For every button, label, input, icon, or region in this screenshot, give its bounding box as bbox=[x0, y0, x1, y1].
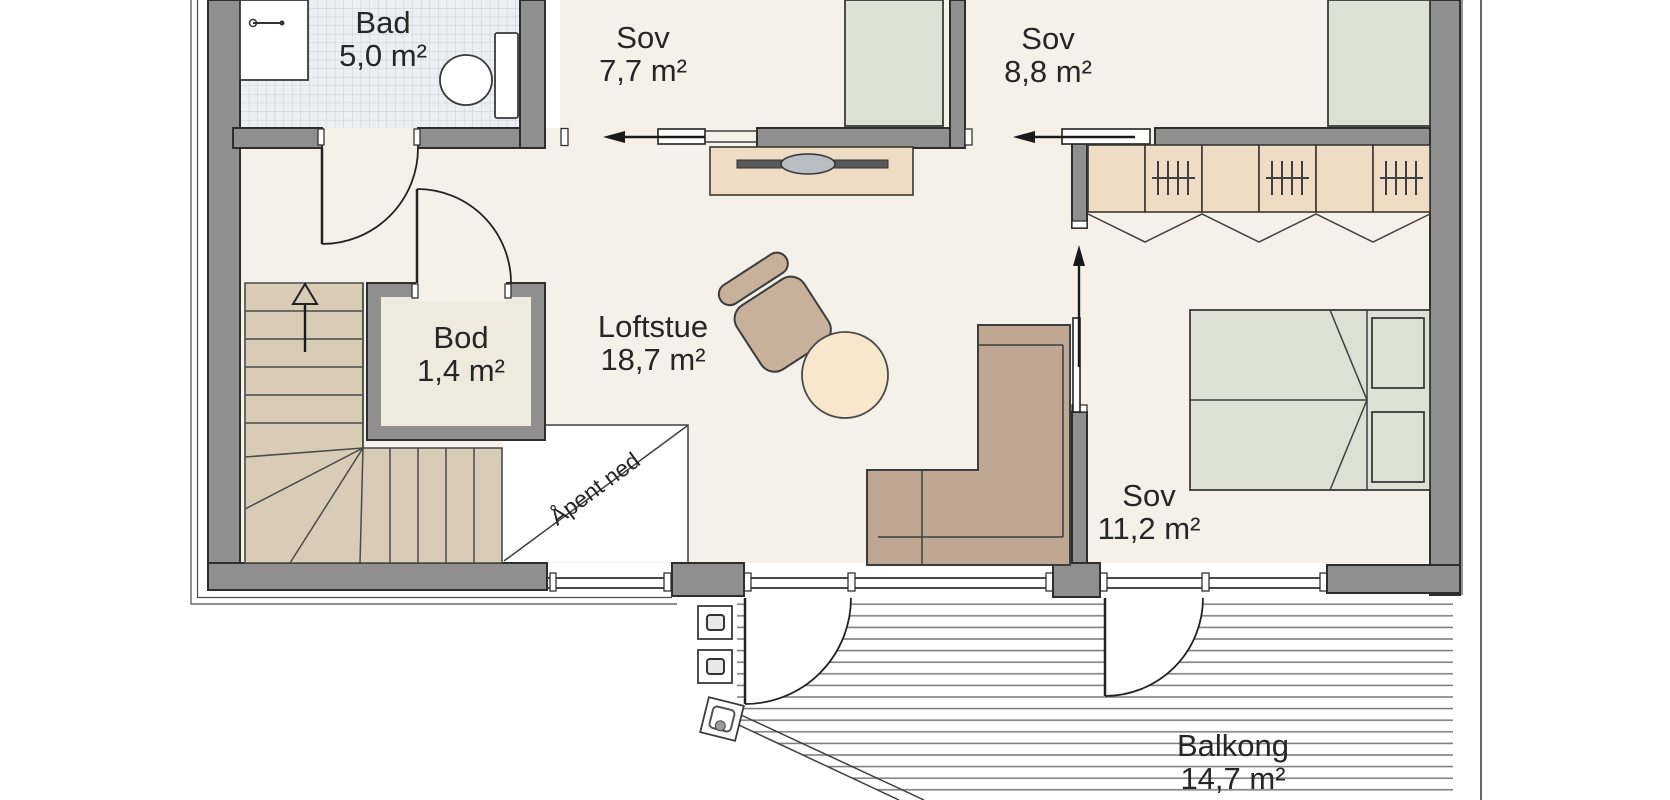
wall-left bbox=[208, 0, 240, 590]
room-label-sov2: Sov8,8 m² bbox=[1004, 23, 1092, 89]
balcony-posts bbox=[698, 606, 744, 741]
bed-sov1 bbox=[845, 0, 943, 126]
bed-sov2 bbox=[1328, 0, 1430, 126]
dresser-tv bbox=[710, 147, 913, 195]
wall-bath-bottom-a bbox=[233, 128, 322, 148]
wall-sov1-bottom bbox=[757, 128, 950, 148]
room-label-bad: Bad5,0 m² bbox=[339, 7, 427, 73]
wall-bath-bottom-b bbox=[418, 128, 520, 148]
room-label-sov1: Sov7,7 m² bbox=[599, 22, 687, 88]
floor-plan-drawing bbox=[0, 0, 1670, 800]
wall-bottom-right bbox=[1327, 565, 1460, 593]
coffee-table bbox=[802, 332, 888, 418]
double-bed-sov3 bbox=[1190, 310, 1430, 490]
wall-loft-divider-bottom bbox=[1072, 412, 1087, 563]
wall-pier-mid bbox=[1053, 563, 1100, 597]
pillow bbox=[1372, 318, 1424, 388]
wall-right bbox=[1430, 0, 1460, 595]
wall-bottom-left bbox=[208, 563, 547, 590]
vanity bbox=[240, 0, 308, 80]
wall-pier-left bbox=[672, 563, 744, 596]
room-label-sov3: Sov11,2 m² bbox=[1098, 480, 1201, 546]
floor-plan: Bad5,0 m² Sov7,7 m² Sov8,8 m² Bod1,4 m² … bbox=[0, 0, 1670, 800]
wall-bedroom-divider bbox=[950, 0, 965, 148]
room-label-balkong: Balkong14,7 m² bbox=[1177, 730, 1289, 796]
room-label-loftstue: Loftstue18,7 m² bbox=[598, 311, 708, 377]
room-label-bod: Bod1,4 m² bbox=[417, 322, 505, 388]
wall-bath-right bbox=[520, 0, 545, 148]
pillow bbox=[1372, 412, 1424, 482]
wall-loft-divider-top bbox=[1072, 143, 1087, 228]
